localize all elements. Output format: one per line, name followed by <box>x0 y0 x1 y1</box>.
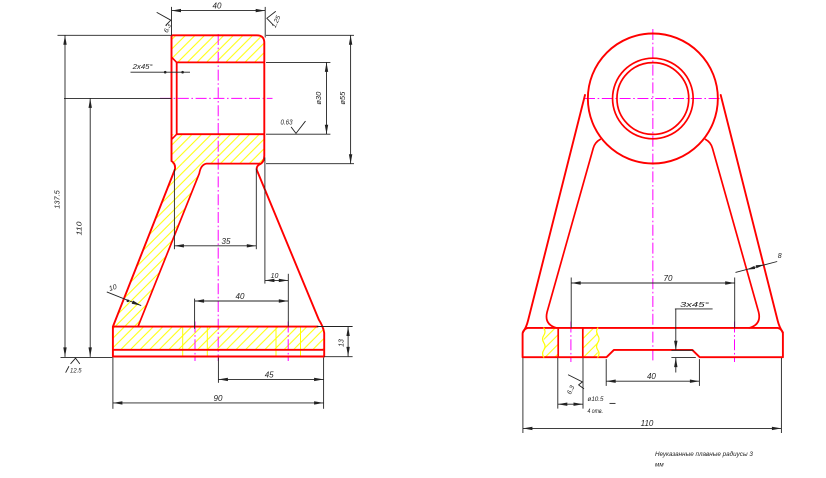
svg-text:35: 35 <box>222 237 231 246</box>
svg-text:12.5: 12.5 <box>70 367 82 374</box>
svg-text:ø30: ø30 <box>314 91 323 105</box>
svg-text:90: 90 <box>214 394 223 403</box>
svg-text:2x45°: 2x45° <box>132 62 153 71</box>
svg-text:0.63: 0.63 <box>281 119 293 126</box>
svg-text:мм: мм <box>655 462 664 469</box>
svg-text:ø10.5: ø10.5 <box>588 396 604 403</box>
svg-text:13: 13 <box>339 339 346 347</box>
svg-text:110: 110 <box>641 419 654 428</box>
svg-text:110: 110 <box>75 221 84 236</box>
svg-text:40: 40 <box>236 292 245 301</box>
svg-text:4 отв.: 4 отв. <box>588 408 604 415</box>
svg-text:10: 10 <box>271 273 279 280</box>
svg-text:40: 40 <box>213 1 222 10</box>
svg-text:40: 40 <box>647 372 656 381</box>
svg-text:3x45°: 3x45° <box>680 300 709 309</box>
svg-text:ø55: ø55 <box>338 91 347 105</box>
svg-text:70: 70 <box>664 274 673 283</box>
svg-text:45: 45 <box>265 370 274 379</box>
svg-text:8: 8 <box>778 253 782 260</box>
svg-text:137.5: 137.5 <box>53 189 62 208</box>
svg-text:Неуказанные плавные радиусы 3: Неуказанные плавные радиусы 3 <box>655 450 753 458</box>
